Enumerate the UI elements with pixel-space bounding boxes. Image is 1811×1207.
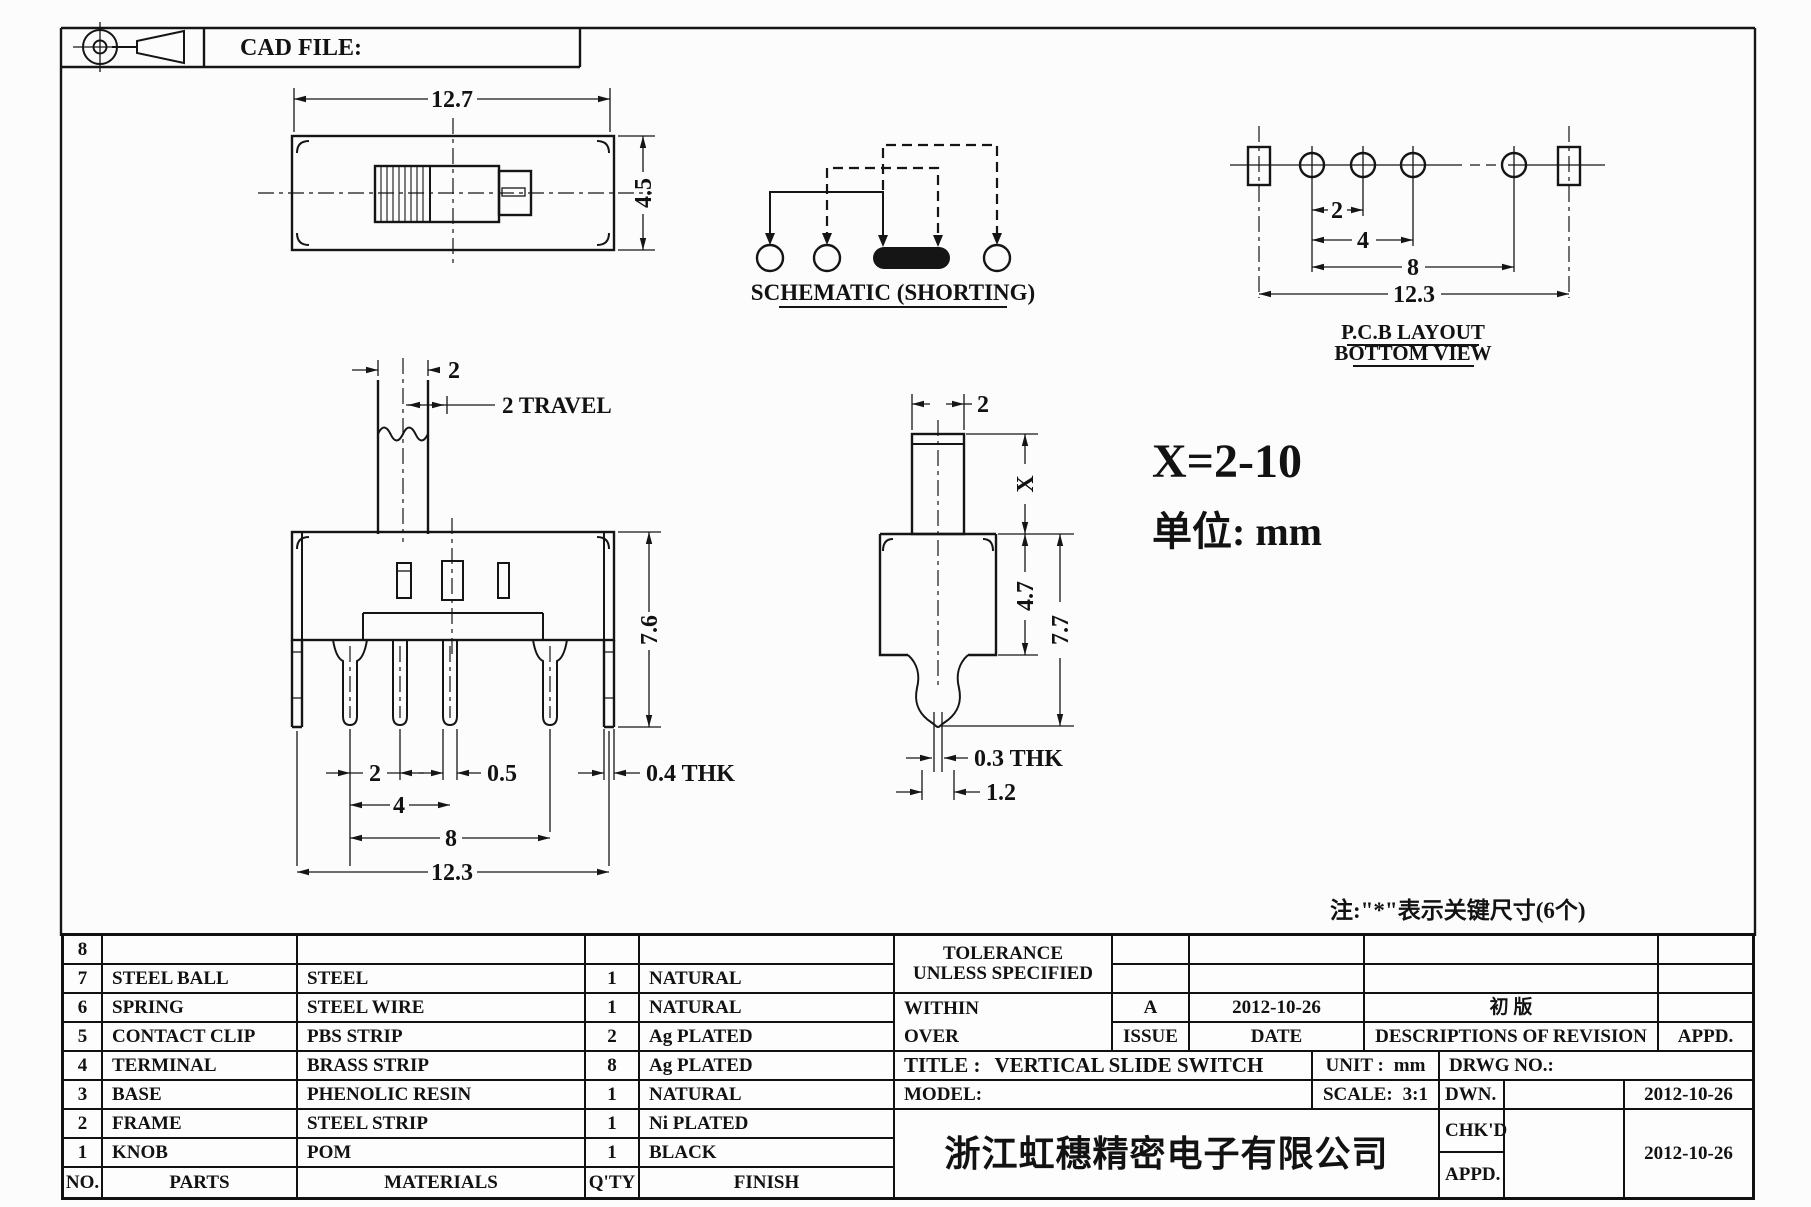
front-pitch1-dim: 2 — [369, 761, 381, 787]
schematic-title: SCHEMATIC (SHORTING) — [751, 280, 1035, 305]
title-block-table: 8 7 STEEL BALL STEEL 1 NATURAL 6 SPRING … — [61, 933, 1755, 1200]
unit-cell: UNIT : mm — [1313, 1052, 1440, 1081]
parts-qty-cell: 1 — [586, 965, 640, 994]
tolerance-over-cell: OVER — [895, 1023, 1113, 1052]
front-pitch2-dim: 4 — [393, 793, 405, 819]
side-total-dim: 7.7 — [1048, 615, 1074, 645]
parts-qty-cell: 8 — [586, 1052, 640, 1081]
company-name: 浙江虹穗精密电子有限公司 — [895, 1110, 1440, 1197]
parts-qty-cell: 1 — [586, 1110, 640, 1139]
front-knob-dim: 2 — [448, 358, 460, 384]
parts-header-qty: Q'TY — [586, 1168, 640, 1197]
unit-note: 单位: mm — [1152, 509, 1322, 554]
parts-qty-cell: 1 — [586, 994, 640, 1023]
scale-value: 3:1 — [1403, 1085, 1428, 1105]
parts-material-cell: STEEL WIRE — [298, 994, 586, 1023]
revision-date-label: DATE — [1190, 1023, 1365, 1052]
revision-issue-value: A — [1113, 994, 1190, 1023]
parts-material-cell: POM — [298, 1139, 586, 1168]
rev-empty-cell — [1190, 965, 1365, 994]
scale-label: SCALE: — [1323, 1085, 1393, 1105]
rev-empty-cell — [1365, 936, 1659, 965]
revision-appd-label: APPD. — [1659, 1023, 1752, 1052]
side-x-dim: X — [1013, 475, 1039, 493]
dwn-date-cell: 2012-10-26 — [1625, 1081, 1752, 1110]
parts-material-cell: STEEL STRIP — [298, 1110, 586, 1139]
parts-qty-cell: 1 — [586, 1139, 640, 1168]
revision-issue-label: ISSUE — [1113, 1023, 1190, 1052]
parts-no-cell: 3 — [64, 1081, 103, 1110]
pcb-dim-8: 8 — [1407, 255, 1419, 281]
pcb-dim-overall: 12.3 — [1393, 282, 1435, 308]
parts-material-cell: PHENOLIC RESIN — [298, 1081, 586, 1110]
chkd-date-cell: 2012-10-26 — [1625, 1110, 1752, 1197]
front-travel-dim: 2 TRAVEL — [502, 393, 612, 418]
parts-finish-cell: NATURAL — [640, 965, 895, 994]
side-thk-dim: 0.3 THK — [974, 746, 1063, 772]
rev-empty-cell — [1659, 936, 1752, 965]
front-view: 2 2 TRAVEL 2 0.5 0. — [292, 358, 735, 886]
parts-finish-cell: NATURAL — [640, 994, 895, 1023]
parts-no-cell: 2 — [64, 1110, 103, 1139]
parts-no-cell: 5 — [64, 1023, 103, 1052]
pcb-dim-4: 4 — [1357, 228, 1369, 254]
parts-header-materials: MATERIALS — [298, 1168, 586, 1197]
parts-no-cell: 6 — [64, 994, 103, 1023]
parts-name-cell: KNOB — [103, 1139, 298, 1168]
revision-appd-value — [1659, 994, 1752, 1023]
key-dims-note: 注:"*"表示关键尺寸(6个) — [1330, 897, 1586, 923]
projection-symbol-icon — [73, 22, 184, 72]
side-stem-dim: 2 — [977, 392, 989, 418]
rev-empty-cell — [1190, 936, 1365, 965]
tolerance-line2: UNLESS SPECIFIED — [913, 964, 1093, 984]
parts-name-cell: SPRING — [103, 994, 298, 1023]
parts-name-cell: TERMINAL — [103, 1052, 298, 1081]
tolerance-header-cell: TOLERANCE UNLESS SPECIFIED — [895, 936, 1113, 994]
unit-value: mm — [1394, 1056, 1426, 1076]
parts-no-cell: 8 — [64, 936, 103, 965]
tolerance-within-cell: WITHIN — [895, 994, 1113, 1023]
chkd-label-cell: CHK'D — [1440, 1110, 1505, 1153]
drawing-sheet: CAD FILE: 12.7 4.5 SCHEMATIC (S — [0, 0, 1811, 1207]
appd-label-cell: APPD. — [1440, 1153, 1505, 1197]
parts-finish-cell: Ag PLATED — [640, 1052, 895, 1081]
dwn-label-cell: DWN. — [1440, 1081, 1505, 1110]
parts-name-cell: STEEL BALL — [103, 965, 298, 994]
side-view: 2 X 4.7 7.7 0.3 THK 1.2 — [880, 392, 1074, 806]
front-overall-dim: 12.3 — [431, 860, 473, 886]
front-pinwidth-dim: 0.5 — [487, 761, 517, 787]
rev-empty-cell — [1113, 936, 1190, 965]
parts-material-cell: STEEL — [298, 965, 586, 994]
parts-no-cell: 4 — [64, 1052, 103, 1081]
title-value: VERTICAL SLIDE SWITCH — [994, 1054, 1263, 1076]
parts-finish-cell: Ag PLATED — [640, 1023, 895, 1052]
revision-desc-value: 初 版 — [1365, 994, 1659, 1023]
tolerance-line1: TOLERANCE — [943, 944, 1063, 964]
pcb-dim-2: 2 — [1331, 198, 1343, 224]
parts-name-cell — [103, 936, 298, 965]
top-height-dim: 4.5 — [631, 178, 657, 208]
drawing-canvas: CAD FILE: 12.7 4.5 SCHEMATIC (S — [0, 0, 1811, 936]
parts-qty-cell — [586, 936, 640, 965]
unit-label: UNIT : — [1326, 1056, 1384, 1076]
top-width-dim: 12.7 — [431, 87, 473, 113]
front-height-dim: 7.6 — [637, 615, 663, 645]
drwg-no-cell: DRWG NO.: — [1440, 1052, 1752, 1081]
parts-header-parts: PARTS — [103, 1168, 298, 1197]
model-cell: MODEL: — [895, 1081, 1313, 1110]
parts-material-cell — [298, 936, 586, 965]
parts-no-cell: 1 — [64, 1139, 103, 1168]
front-thk-dim: 0.4 THK — [646, 761, 735, 787]
title-label: TITLE : — [904, 1054, 980, 1076]
top-view: 12.7 4.5 — [258, 87, 657, 268]
parts-finish-cell: Ni PLATED — [640, 1110, 895, 1139]
parts-finish-cell — [640, 936, 895, 965]
rev-empty-cell — [1113, 965, 1190, 994]
front-pitch3-dim: 8 — [445, 826, 457, 852]
side-body-dim: 4.7 — [1013, 581, 1039, 611]
revision-date-value: 2012-10-26 — [1190, 994, 1365, 1023]
x-range-note: X=2-10 — [1152, 435, 1302, 488]
pcb-layout-view: 2 4 8 12.3 P.C.B LAYOUT BOTTOM VIEW — [1230, 126, 1605, 366]
rev-empty-cell — [1365, 965, 1659, 994]
dwn-sign-cell — [1505, 1081, 1625, 1110]
parts-header-no: NO. — [64, 1168, 103, 1197]
cad-file-label: CAD FILE: — [240, 35, 362, 61]
scale-cell: SCALE: 3:1 — [1313, 1081, 1440, 1110]
schematic-view: SCHEMATIC (SHORTING) — [751, 145, 1035, 307]
parts-no-cell: 7 — [64, 965, 103, 994]
parts-name-cell: CONTACT CLIP — [103, 1023, 298, 1052]
title-cell: TITLE : VERTICAL SLIDE SWITCH — [895, 1052, 1313, 1081]
parts-name-cell: BASE — [103, 1081, 298, 1110]
parts-finish-cell: NATURAL — [640, 1081, 895, 1110]
parts-name-cell: FRAME — [103, 1110, 298, 1139]
parts-qty-cell: 1 — [586, 1081, 640, 1110]
parts-header-finish: FINISH — [640, 1168, 895, 1197]
parts-qty-cell: 2 — [586, 1023, 640, 1052]
chkd-sign-cell — [1505, 1110, 1625, 1197]
revision-desc-label: DESCRIPTIONS OF REVISION — [1365, 1023, 1659, 1052]
parts-material-cell: PBS STRIP — [298, 1023, 586, 1052]
rev-empty-cell — [1659, 965, 1752, 994]
parts-material-cell: BRASS STRIP — [298, 1052, 586, 1081]
side-tip-dim: 1.2 — [986, 780, 1016, 806]
parts-finish-cell: BLACK — [640, 1139, 895, 1168]
